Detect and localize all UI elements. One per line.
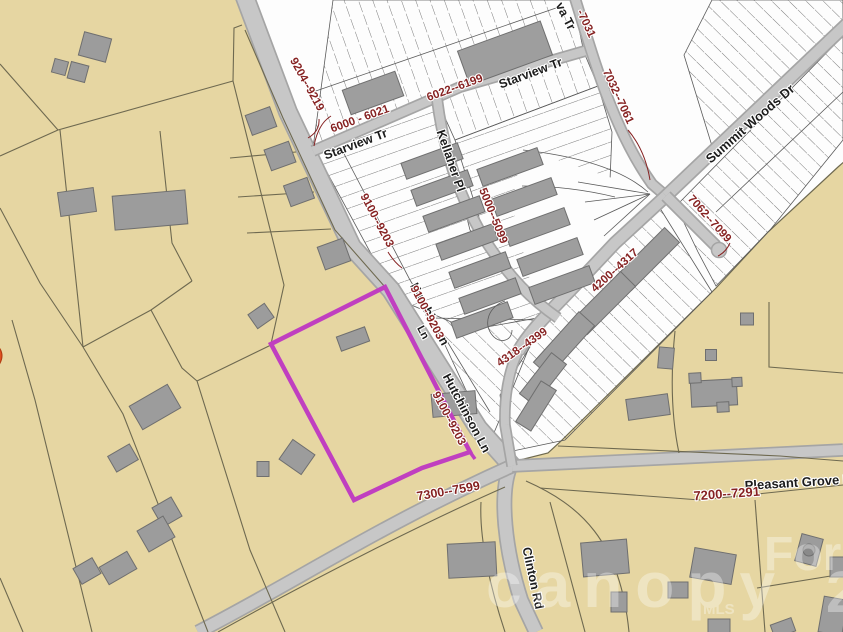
svg-text:MLS: MLS	[703, 601, 735, 618]
svg-text:For: For	[764, 528, 841, 581]
svg-text:canopy: canopy	[486, 549, 788, 621]
